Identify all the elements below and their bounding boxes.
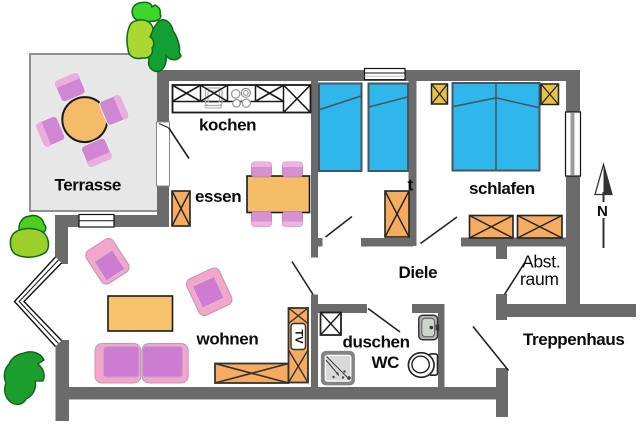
svg-text:t: t [408, 176, 414, 195]
svg-text:Treppenhaus: Treppenhaus [523, 330, 624, 349]
svg-text:N: N [597, 203, 608, 220]
svg-text:WC: WC [372, 353, 400, 372]
svg-text:schlafen: schlafen [469, 179, 535, 198]
svg-text:essen: essen [195, 187, 241, 206]
svg-text:wohnen: wohnen [196, 330, 259, 349]
svg-text:Diele: Diele [399, 263, 438, 282]
svg-text:duschen: duschen [343, 333, 410, 352]
svg-text:Terrasse: Terrasse [55, 176, 121, 195]
svg-text:TV: TV [293, 329, 305, 344]
svg-text:raum: raum [520, 269, 559, 289]
svg-text:kochen: kochen [199, 116, 256, 135]
